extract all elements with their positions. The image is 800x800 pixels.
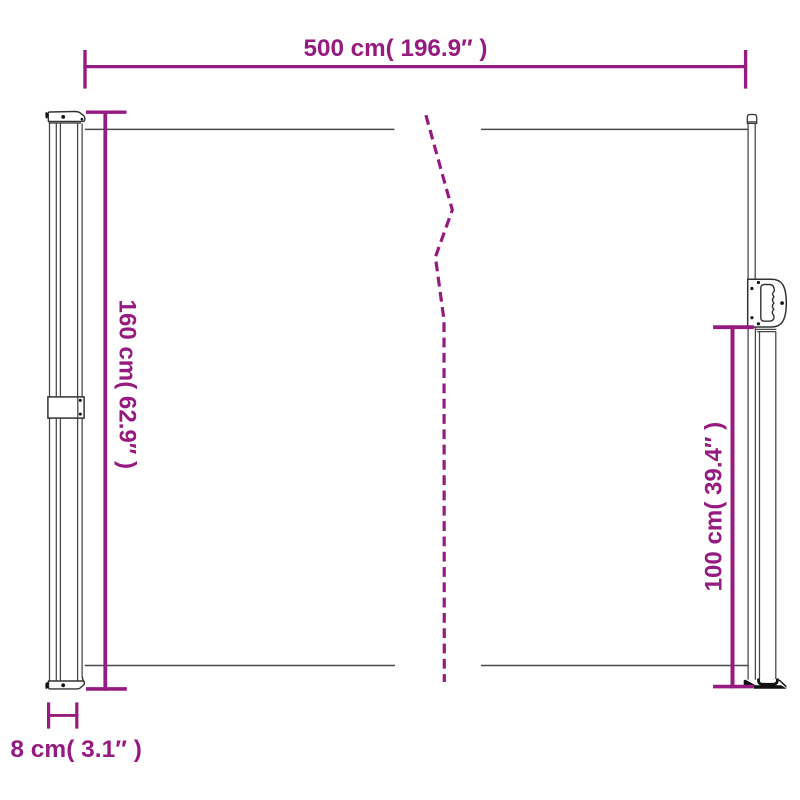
svg-text:500 cm( 196.9″ ): 500 cm( 196.9″ ) bbox=[304, 35, 488, 62]
svg-text:160 cm( 62.9″ ): 160 cm( 62.9″ ) bbox=[114, 300, 141, 470]
svg-text:100 cm( 39.4″ ): 100 cm( 39.4″ ) bbox=[701, 422, 728, 591]
svg-text:8 cm( 3.1″ ): 8 cm( 3.1″ ) bbox=[10, 736, 142, 763]
